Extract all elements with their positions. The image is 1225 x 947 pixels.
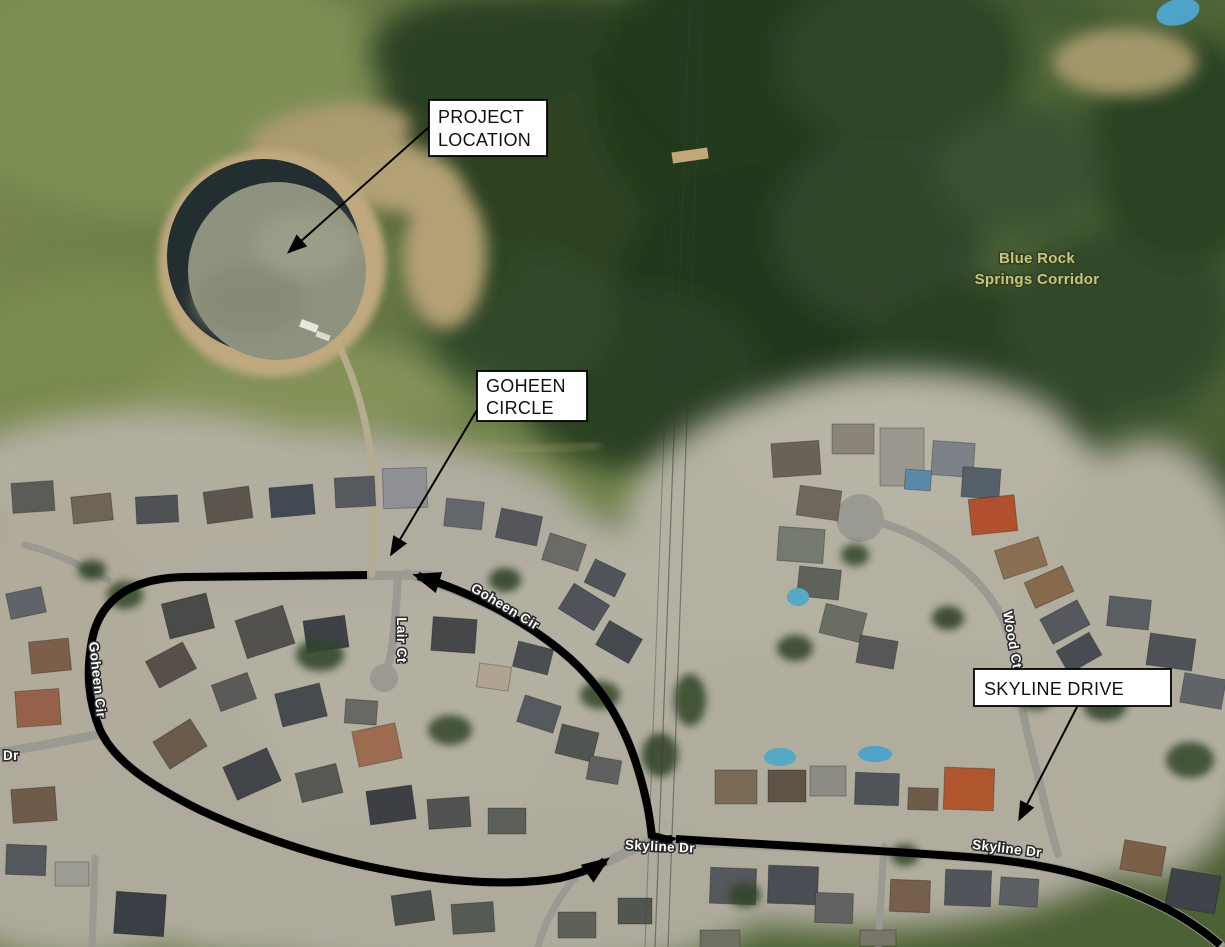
aerial-map: Goheen Cir Goheen Cir Lair Ct Wood Ct Sk… — [0, 0, 1225, 947]
project-location-label-line1: PROJECT — [438, 107, 524, 127]
wood-ct-culdesac — [836, 494, 884, 542]
street-label-lair-ct: Lair Ct — [394, 617, 409, 663]
street-label-edge-dr: Dr — [3, 748, 19, 763]
goheen-circle-label-line2: CIRCLE — [486, 398, 554, 418]
lair-ct-culdesac — [370, 664, 398, 692]
aerial-map-screenshot: Goheen Cir Goheen Cir Lair Ct Wood Ct Sk… — [0, 0, 1225, 947]
road-side-south-2 — [92, 858, 95, 947]
area-label-line1: Blue Rock — [999, 250, 1075, 267]
skyline-drive-label: SKYLINE DRIVE — [984, 679, 1124, 699]
area-label-line2: Springs Corridor — [975, 271, 1100, 288]
reservoir — [158, 149, 386, 377]
project-location-label-line2: LOCATION — [438, 130, 531, 150]
goheen-circle-label-line1: GOHEEN — [486, 376, 566, 396]
